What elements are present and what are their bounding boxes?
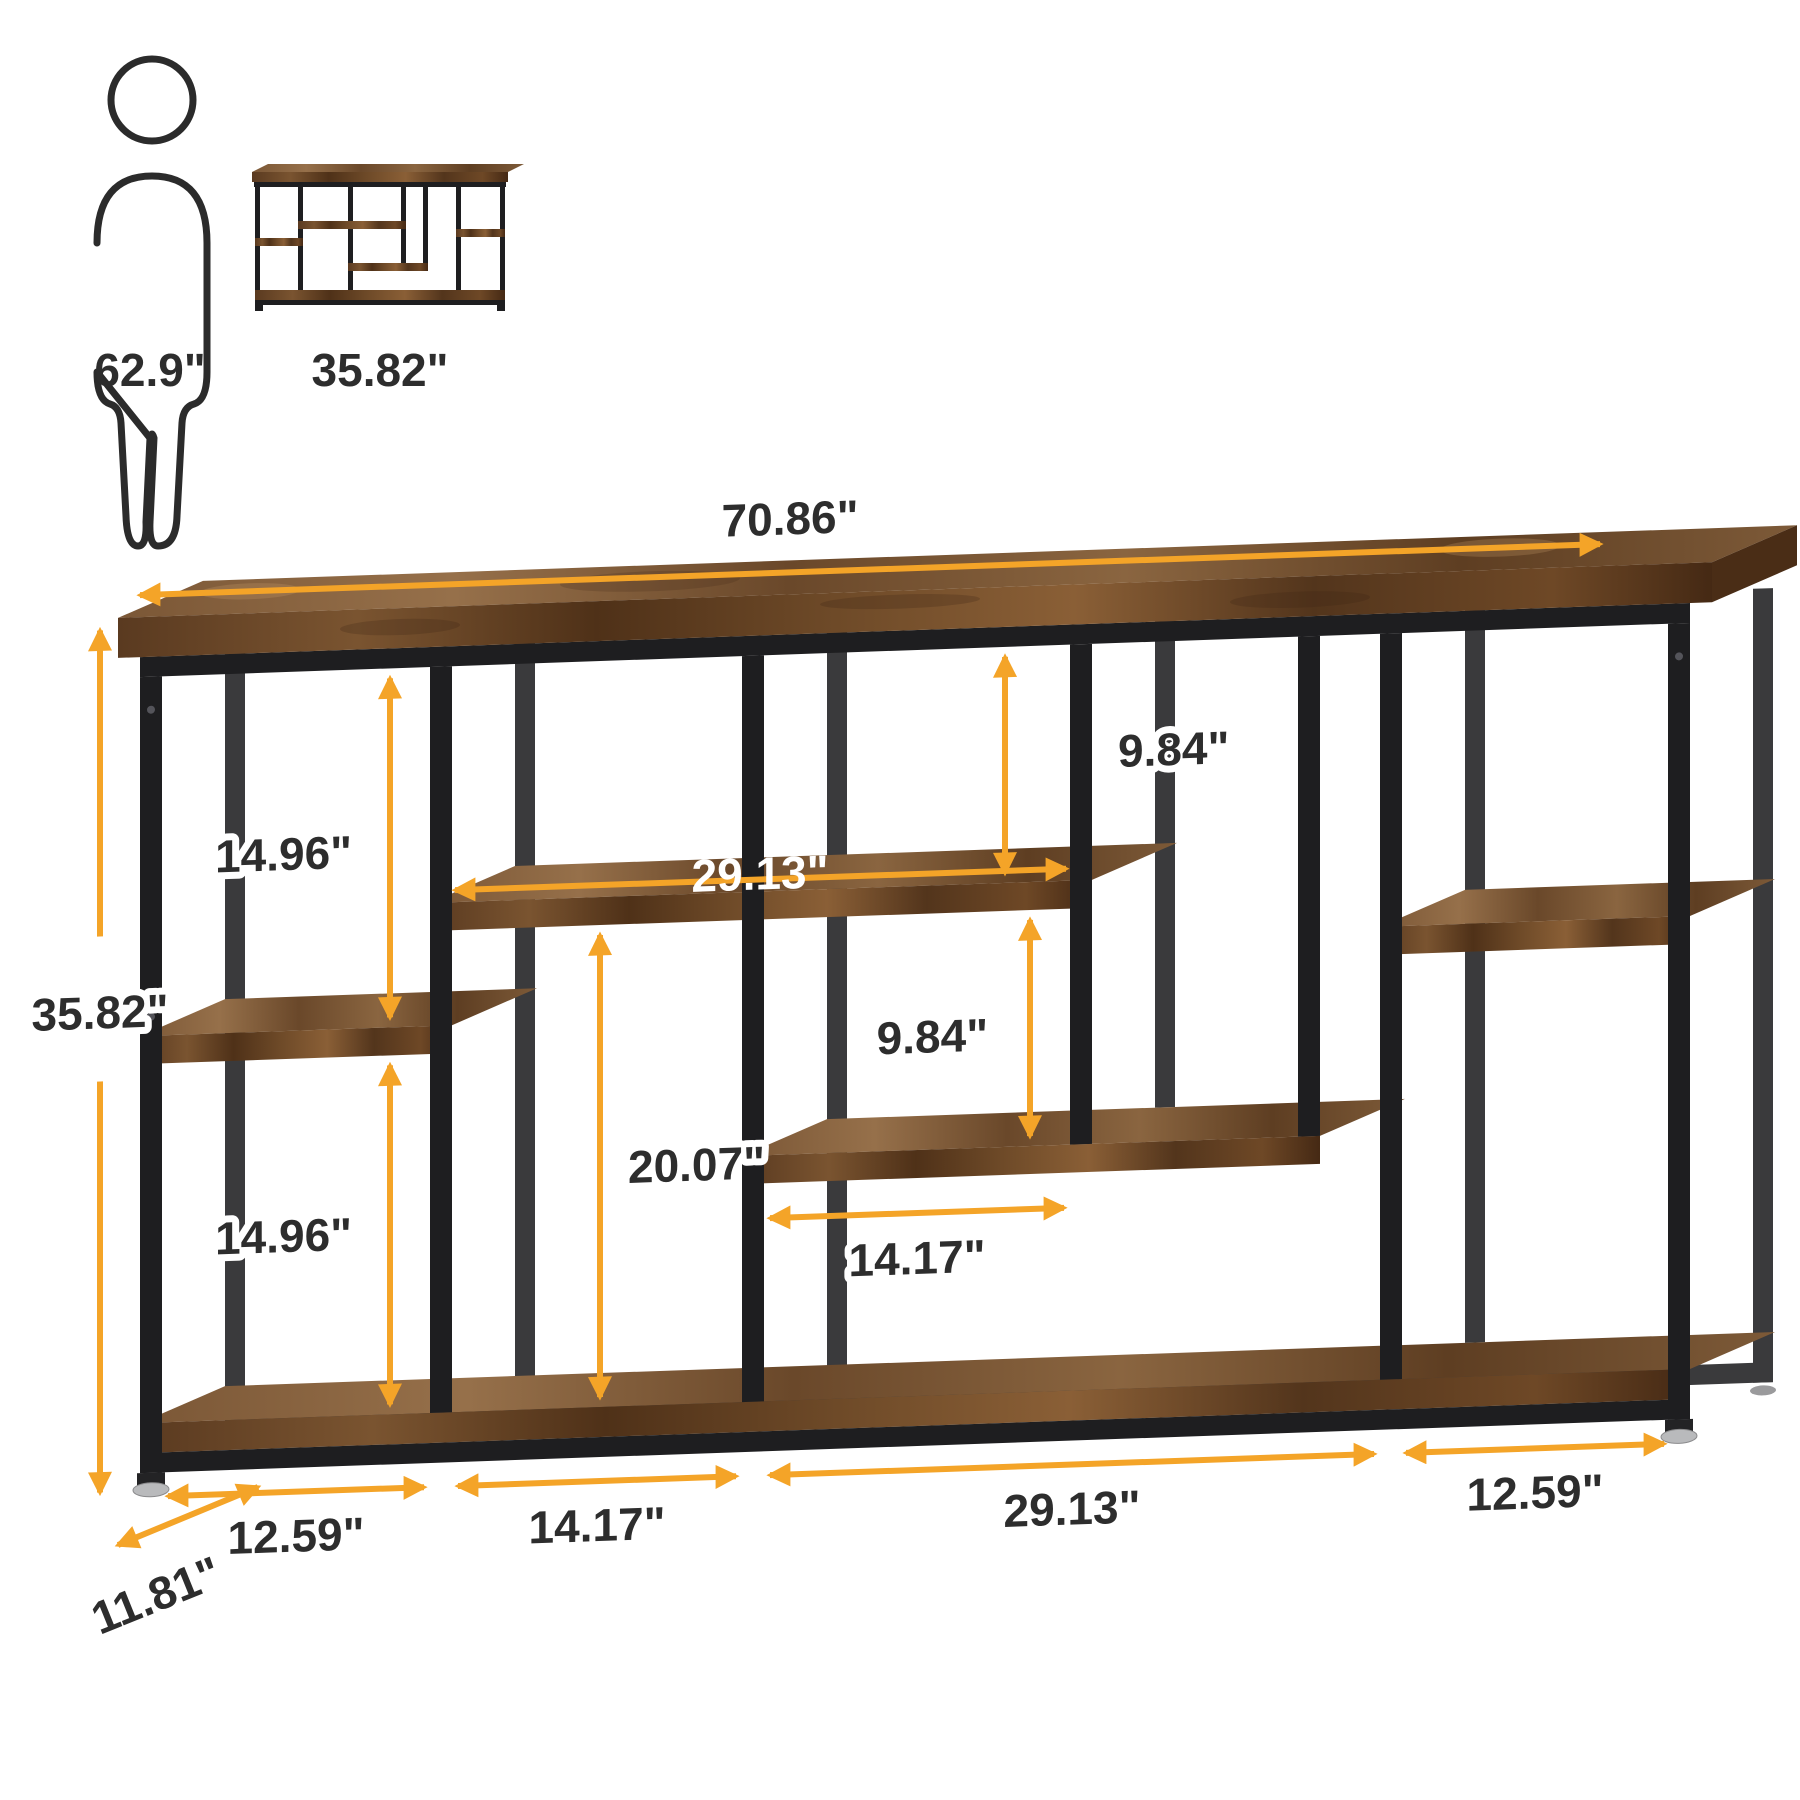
dim-arrow-bottom-section-2 [458,1476,736,1486]
dim-top-to-upper-shelf: 9.84" [1118,721,1229,777]
dim-center-clearance: 20.07" [628,1136,765,1193]
dim-left-gap-upper: 14.96" [215,826,352,883]
dim-overall-depth: 11.81" [84,1546,228,1645]
thumb-tabletop-top [252,164,524,172]
dim-bottom-section-3: 29.13" [1004,1480,1141,1537]
furniture-illustration: 70.86" 35.82" 14.96" 14.96" 20.07" 29.13… [32,457,1797,1571]
front-right-leg [1668,623,1690,1420]
dim-middle-shelf-width: 14.17" [849,1230,986,1287]
thumb-tabletop [252,172,508,182]
product-dimension-diagram: 62.9" 35.82" [0,0,1800,1800]
person-head-icon [111,59,193,141]
person-icon [97,59,207,546]
left-shelf-top [140,988,537,1036]
dim-arrow-bottom-section-1 [168,1487,424,1496]
back-right-leg [1753,588,1773,1383]
thumbnail-width-label: 35.82" [312,344,449,396]
right-shelf-top [1380,879,1775,927]
dim-arrow-bottom-section-4 [1406,1444,1664,1453]
product-thumbnail [252,164,524,311]
dim-bottom-section-2: 14.17" [529,1497,666,1554]
dim-overall-height: 35.82" [32,984,169,1041]
dim-arrow-bottom-section-3 [770,1454,1374,1475]
diagram-svg: 62.9" 35.82" [0,0,1800,1800]
dim-left-gap-lower: 14.96" [215,1208,352,1265]
front-left-leg [140,676,162,1473]
dim-arrow-middle-shelf-width [770,1208,1064,1218]
dim-upper-to-middle-shelf: 9.84" [877,1009,988,1065]
dim-upper-shelf-width: 29.13" [692,845,829,902]
person-height-label: 62.9" [94,344,205,396]
dim-bottom-section-4: 12.59" [1467,1464,1604,1521]
dim-bottom-section-1: 12.59" [228,1507,365,1564]
dim-overall-width: 70.86" [722,490,859,547]
